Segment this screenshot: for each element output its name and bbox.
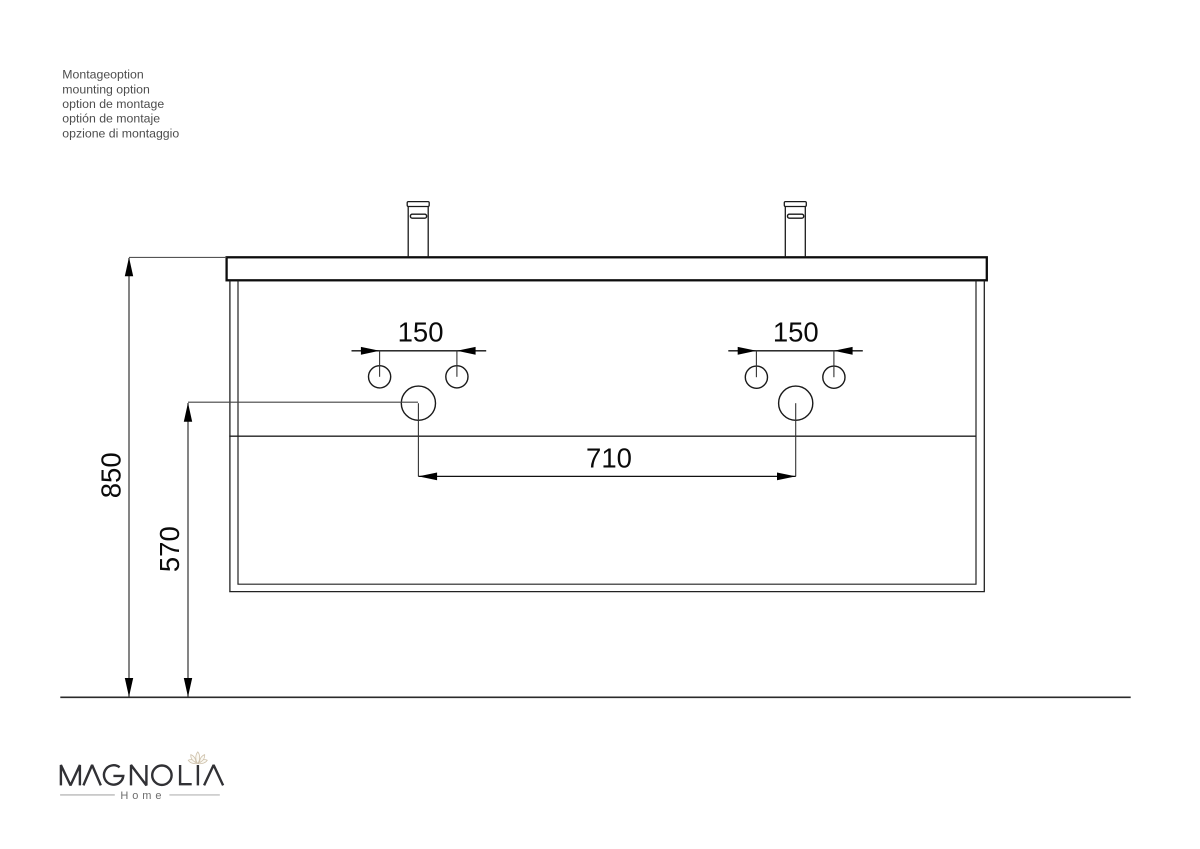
svg-text:mounting option: mounting option xyxy=(62,82,150,96)
svg-text:option de montage: option de montage xyxy=(62,97,164,111)
svg-text:opzione di montaggio: opzione di montaggio xyxy=(62,126,179,140)
svg-text:710: 710 xyxy=(586,442,632,473)
svg-text:150: 150 xyxy=(773,317,819,348)
svg-text:optión de montaje: optión de montaje xyxy=(62,111,160,125)
svg-text:570: 570 xyxy=(154,526,185,572)
svg-text:850: 850 xyxy=(95,452,126,498)
svg-text:150: 150 xyxy=(398,317,444,348)
svg-text:Montageoption: Montageoption xyxy=(62,68,144,82)
svg-text:Home: Home xyxy=(120,790,165,802)
